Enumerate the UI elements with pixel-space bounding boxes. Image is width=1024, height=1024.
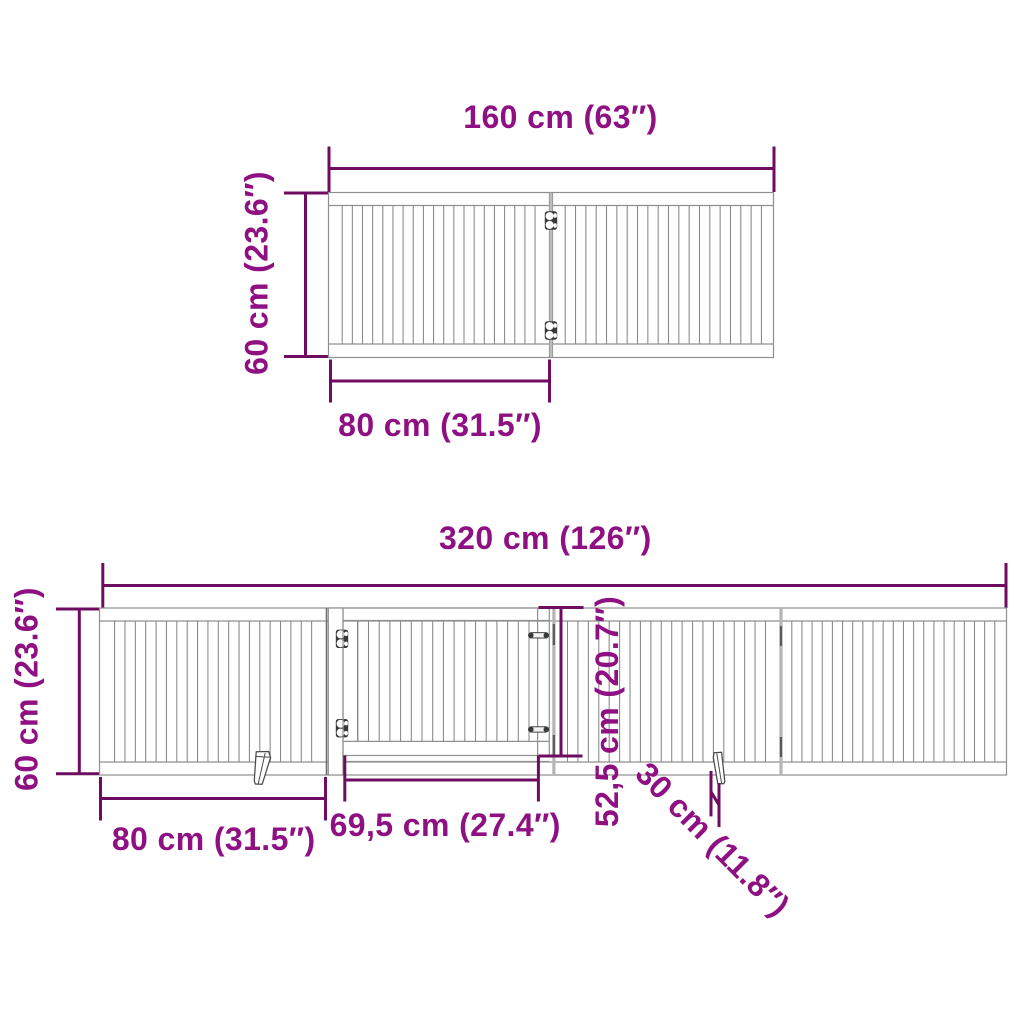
svg-text:69,5 cm (27.4″): 69,5 cm (27.4″) [330,807,561,843]
svg-text:60 cm (23.6″): 60 cm (23.6″) [8,587,44,791]
svg-text:80 cm (31.5″): 80 cm (31.5″) [112,821,316,857]
svg-text:80 cm (31.5″): 80 cm (31.5″) [338,407,542,443]
svg-text:320 cm (126″): 320 cm (126″) [439,520,652,556]
svg-text:52,5 cm (20.7″): 52,5 cm (20.7″) [589,596,625,827]
svg-text:60 cm (23.6″): 60 cm (23.6″) [239,171,275,375]
svg-text:160 cm (63″): 160 cm (63″) [463,99,657,135]
